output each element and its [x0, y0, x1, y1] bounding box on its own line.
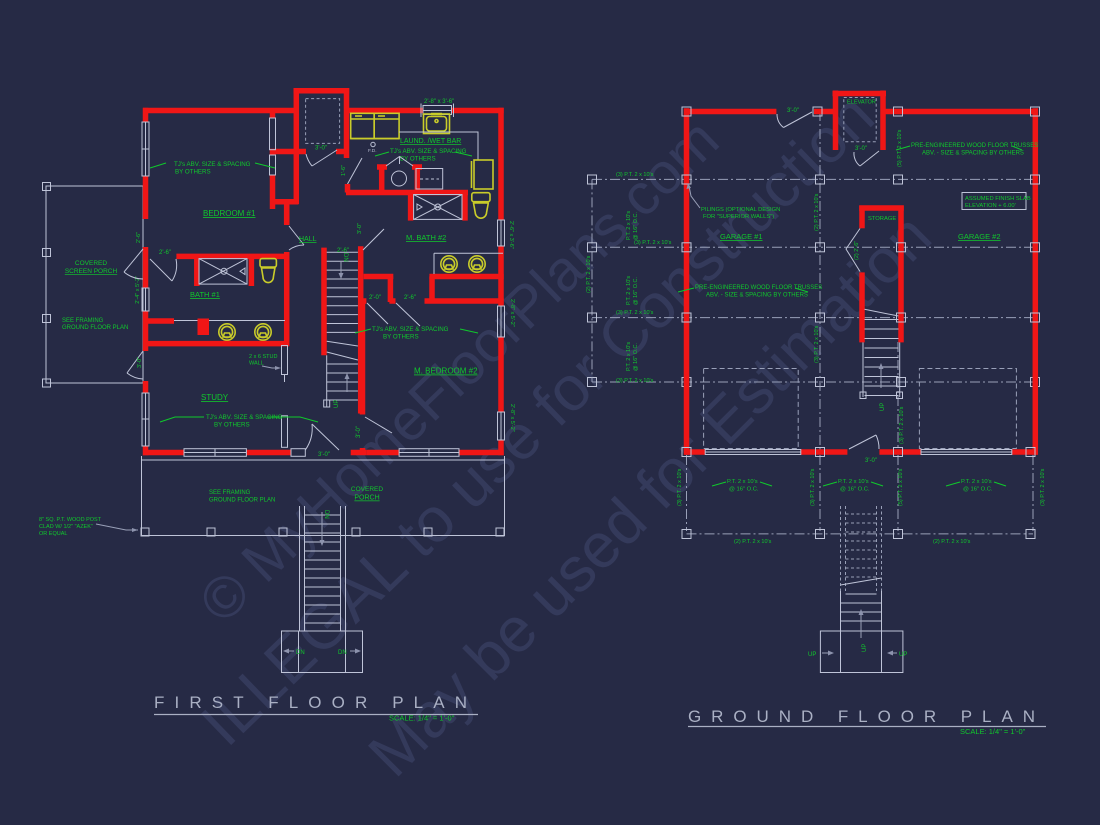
- svg-text:F.D.: F.D.: [368, 148, 377, 154]
- svg-text:BY OTHERS: BY OTHERS: [175, 169, 211, 176]
- svg-text:ELEVATION + 6.00': ELEVATION + 6.00': [965, 203, 1016, 209]
- svg-text:P.T. 2 x 10's: P.T. 2 x 10's: [626, 211, 632, 240]
- svg-text:2'-8" x 3'-6": 2'-8" x 3'-6": [424, 99, 454, 105]
- svg-text:UP: UP: [899, 652, 907, 658]
- svg-text:BY OTHERS: BY OTHERS: [383, 334, 419, 341]
- svg-text:2'-6": 2'-6": [159, 250, 171, 256]
- svg-text:2'-6": 2'-6": [404, 295, 416, 301]
- svg-text:3'-0": 3'-0": [137, 357, 143, 368]
- svg-text:(3) P.T. 2 x 10's: (3) P.T. 2 x 10's: [814, 325, 820, 363]
- svg-text:TJ's ABV. SIZE & SPACING: TJ's ABV. SIZE & SPACING: [390, 148, 467, 155]
- svg-text:SCREEN PORCH: SCREEN PORCH: [65, 268, 118, 275]
- svg-text:UP: UP: [808, 652, 816, 658]
- svg-text:(2) P.T. 2 x 10's: (2) P.T. 2 x 10's: [814, 193, 820, 231]
- svg-text:FOR "SUPERIOR WALLS"): FOR "SUPERIOR WALLS"): [703, 214, 774, 220]
- svg-text:(5) P.T. 2 x 10's: (5) P.T. 2 x 10's: [898, 468, 904, 506]
- svg-text:2'-6" x 3'-6": 2'-6" x 3'-6": [508, 221, 514, 249]
- svg-text:OR EQUAL: OR EQUAL: [39, 531, 67, 537]
- svg-text:(2) P.T. 2 x 10's: (2) P.T. 2 x 10's: [734, 539, 772, 545]
- svg-text:P.T. 2 x 10's: P.T. 2 x 10's: [961, 479, 992, 485]
- svg-text:(2) P.T. 2 x 10's: (2) P.T. 2 x 10's: [586, 255, 592, 293]
- svg-text:UP: UP: [334, 400, 340, 408]
- svg-text:3'-0": 3'-0": [315, 146, 327, 152]
- svg-text:3'-0": 3'-0": [318, 452, 330, 458]
- svg-text:BY OTHERS: BY OTHERS: [400, 156, 436, 163]
- svg-text:STORAGE: STORAGE: [868, 216, 896, 222]
- svg-text:(3) P.T. 2 x 10's: (3) P.T. 2 x 10's: [899, 406, 905, 444]
- svg-text:GARAGE #2: GARAGE #2: [958, 232, 1001, 241]
- svg-text:ABV. - SIZE & SPACING BY OTHER: ABV. - SIZE & SPACING BY OTHERS: [706, 293, 808, 299]
- svg-text:3'-0": 3'-0": [855, 146, 867, 152]
- svg-text:GARAGE #1: GARAGE #1: [720, 232, 763, 241]
- svg-text:TJ's ABV. SIZE & SPACING: TJ's ABV. SIZE & SPACING: [372, 326, 449, 333]
- svg-text:1'-6": 1'-6": [341, 165, 347, 176]
- svg-text:@ 16" O.C.: @ 16" O.C.: [633, 343, 639, 371]
- svg-text:3'-0": 3'-0": [865, 458, 877, 464]
- svg-text:COVERED: COVERED: [351, 486, 383, 493]
- svg-text:ASSUMED FINISH SLAB: ASSUMED FINISH SLAB: [965, 196, 1031, 202]
- svg-text:M. BEDROOM #2: M. BEDROOM #2: [414, 367, 478, 376]
- svg-text:PRE-ENGINEERED WOOD FLOOR TRU: PRE-ENGINEERED WOOD FLOOR TRUSSES: [911, 143, 1038, 149]
- svg-text:DN: DN: [323, 510, 329, 519]
- svg-text:(3) P.T. 2 x 10's: (3) P.T. 2 x 10's: [810, 468, 816, 506]
- svg-text:COVERED: COVERED: [75, 260, 107, 267]
- svg-text:2'-6": 2'-6": [136, 232, 142, 243]
- svg-text:FIRST FLOOR PLAN: FIRST FLOOR PLAN: [154, 693, 478, 712]
- svg-text:(3) P.T. 2 x 10's: (3) P.T. 2 x 10's: [1040, 468, 1046, 506]
- svg-text:UP: UP: [862, 644, 868, 652]
- svg-text:P.T. 2 x 10's: P.T. 2 x 10's: [626, 342, 632, 371]
- svg-text:2 x 6 STUD: 2 x 6 STUD: [249, 354, 277, 360]
- svg-text:HALL: HALL: [299, 236, 317, 243]
- svg-text:STUDY: STUDY: [201, 393, 229, 402]
- svg-text:BEDROOM #1: BEDROOM #1: [203, 209, 256, 218]
- svg-text:TJ's ABV. SIZE & SPACING: TJ's ABV. SIZE & SPACING: [174, 161, 251, 168]
- svg-text:2'-8" x 5'-2": 2'-8" x 5'-2": [509, 299, 515, 327]
- svg-text:ELEVATOR: ELEVATOR: [847, 100, 876, 106]
- svg-text:M. BATH #2: M. BATH #2: [406, 233, 446, 242]
- svg-text:(3) P.T. 2 x 10's: (3) P.T. 2 x 10's: [634, 240, 672, 246]
- svg-text:2'-0": 2'-0": [369, 295, 381, 301]
- svg-text:SEE FRAMING: SEE FRAMING: [62, 318, 104, 324]
- svg-text:SEE FRAMING: SEE FRAMING: [209, 490, 251, 496]
- svg-text:(2) P.T. 2 x 10's: (2) P.T. 2 x 10's: [933, 539, 971, 545]
- svg-text:(3) P.T. 2 x 10's: (3) P.T. 2 x 10's: [616, 310, 654, 316]
- svg-text:2'-4" x 5'-2": 2'-4" x 5'-2": [135, 276, 141, 304]
- svg-text:DN: DN: [338, 650, 347, 656]
- svg-text:SCALE: 1/4" = 1'-0": SCALE: 1/4" = 1'-0": [389, 714, 455, 723]
- svg-text:PILINGS (OPTIONAL DESIGN: PILINGS (OPTIONAL DESIGN: [701, 207, 780, 213]
- svg-text:3'-0": 3'-0": [357, 223, 363, 234]
- svg-text:(3) P.T. 2 x 10's: (3) P.T. 2 x 10's: [616, 378, 654, 384]
- svg-text:P.T. 2 x 10's: P.T. 2 x 10's: [727, 479, 758, 485]
- svg-text:GROUND FLOOR PLAN: GROUND FLOOR PLAN: [62, 325, 128, 331]
- svg-text:3'-0": 3'-0": [787, 108, 799, 114]
- svg-text:2'-8" x 5'-2": 2'-8" x 5'-2": [509, 404, 515, 432]
- svg-text:(2) 2'-6": (2) 2'-6": [854, 241, 860, 260]
- svg-text:@ 16" O.C.: @ 16" O.C.: [729, 487, 759, 493]
- svg-text:CLAD W/ 1/2" "AZEK": CLAD W/ 1/2" "AZEK": [39, 524, 93, 530]
- svg-text:@ 16" O.C.: @ 16" O.C.: [633, 277, 639, 305]
- svg-text:2'-6": 2'-6": [337, 248, 349, 254]
- svg-text:P.T. 2 x 10's: P.T. 2 x 10's: [626, 276, 632, 305]
- svg-text:WALL: WALL: [249, 361, 264, 367]
- svg-text:DN: DN: [296, 650, 305, 656]
- svg-text:P.T. 2 x 10's: P.T. 2 x 10's: [838, 479, 869, 485]
- svg-text:@ 16" O.C.: @ 16" O.C.: [633, 212, 639, 240]
- svg-text:GROUND FLOOR PLAN: GROUND FLOOR PLAN: [209, 498, 275, 504]
- svg-text:DN: DN: [342, 253, 348, 262]
- svg-text:GROUND FLOOR PLAN: GROUND FLOOR PLAN: [688, 707, 1046, 726]
- svg-text:SCALE: 1/4" = 1'-0": SCALE: 1/4" = 1'-0": [960, 727, 1026, 736]
- svg-text:LAUND. /WET BAR: LAUND. /WET BAR: [400, 138, 461, 145]
- svg-text:@ 16" O.C.: @ 16" O.C.: [840, 487, 870, 493]
- svg-text:(5) P.T. 2 x 10's: (5) P.T. 2 x 10's: [897, 129, 903, 167]
- svg-text:(3) P.T. 2 x 10's: (3) P.T. 2 x 10's: [677, 468, 683, 506]
- svg-text:PORCH: PORCH: [354, 495, 379, 502]
- svg-text:@ 16" O.C.: @ 16" O.C.: [963, 487, 993, 493]
- svg-text:(3) P.T. 2 x 10's: (3) P.T. 2 x 10's: [616, 172, 654, 178]
- svg-text:UP: UP: [880, 403, 886, 411]
- svg-text:ABV. - SIZE & SPACING BY OTHER: ABV. - SIZE & SPACING BY OTHERS: [922, 151, 1024, 157]
- svg-text:3'-0": 3'-0": [356, 426, 362, 438]
- svg-text:8" SQ. P.T. WOOD POST: 8" SQ. P.T. WOOD POST: [39, 517, 102, 523]
- svg-text:BY OTHERS: BY OTHERS: [214, 422, 250, 429]
- svg-text:BATH #1: BATH #1: [190, 290, 220, 299]
